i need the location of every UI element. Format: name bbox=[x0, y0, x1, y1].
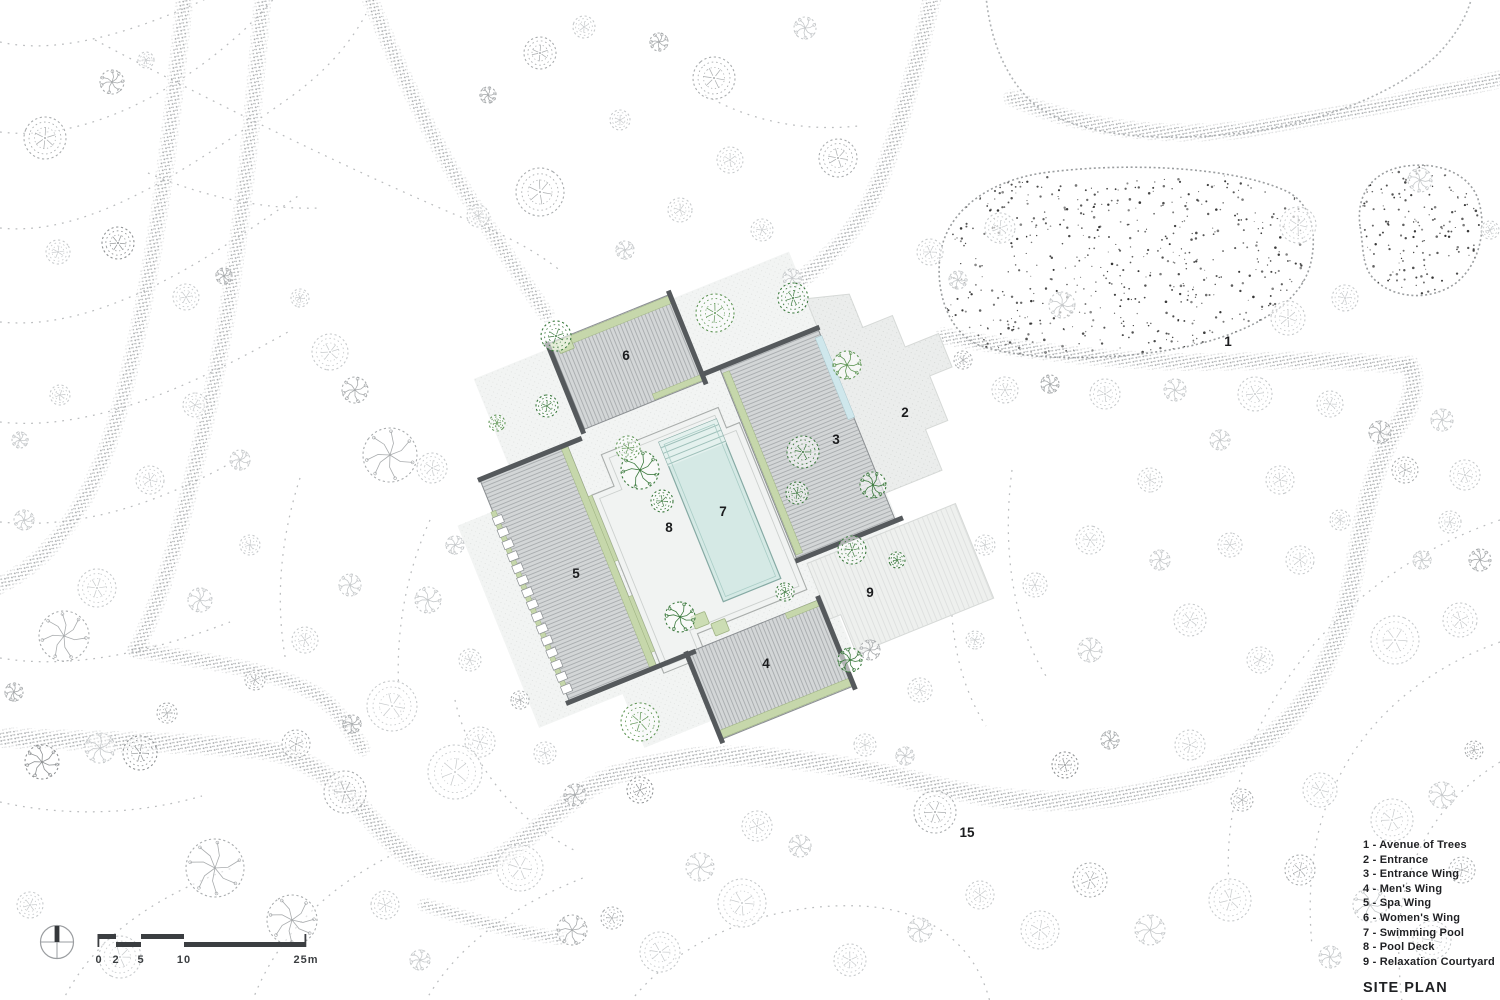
tree-icon bbox=[667, 197, 693, 223]
plan-label-4: 4 bbox=[762, 656, 770, 671]
tree-icon bbox=[1146, 546, 1173, 573]
tree-icon bbox=[1440, 600, 1480, 640]
plan-title: SITE PLAN bbox=[1363, 980, 1500, 996]
tree-icon bbox=[97, 222, 138, 263]
tree-icon bbox=[1073, 633, 1107, 667]
tree-icon bbox=[11, 507, 38, 534]
plan-label-2: 2 bbox=[901, 405, 909, 420]
tree-icon bbox=[245, 670, 265, 690]
ponds bbox=[939, 0, 1482, 359]
tree-icon bbox=[8, 428, 31, 451]
plan-label-1: 1 bbox=[1224, 334, 1232, 349]
tree-icon bbox=[987, 372, 1024, 409]
tree-icon bbox=[507, 159, 573, 225]
tree-icon bbox=[597, 903, 628, 934]
scale-tick-label: 2 bbox=[112, 954, 119, 966]
legend-item-2: 2 - Entrance bbox=[1363, 853, 1500, 868]
contour-line bbox=[630, 906, 990, 1000]
plan-label-9: 9 bbox=[866, 585, 874, 600]
tree-icon bbox=[42, 236, 75, 269]
tree-icon bbox=[1137, 467, 1162, 492]
tree-icon bbox=[1168, 598, 1212, 642]
tree-icon bbox=[1215, 530, 1244, 559]
contour-line bbox=[0, 0, 276, 133]
tree-icon bbox=[1410, 548, 1434, 572]
tree-icon bbox=[352, 417, 427, 492]
plan-label-6: 6 bbox=[622, 348, 630, 363]
tree-icon bbox=[904, 674, 936, 706]
tree-icon bbox=[531, 739, 560, 768]
tree-icon bbox=[1242, 642, 1278, 678]
tree-icon bbox=[187, 587, 213, 613]
legend-item-4: 4 - Men's Wing bbox=[1363, 882, 1500, 897]
tree-icon bbox=[287, 622, 323, 658]
contour-line bbox=[1008, 470, 1046, 676]
tree-icon bbox=[1462, 738, 1486, 762]
tree-icon bbox=[1467, 547, 1494, 574]
green-tree-icon bbox=[665, 602, 695, 632]
tree-icon bbox=[413, 585, 442, 614]
legend-item-6: 6 - Women's Wing bbox=[1363, 911, 1500, 926]
scale-tick-label: 25m bbox=[293, 954, 318, 966]
tree-icon bbox=[17, 110, 72, 165]
tree-icon bbox=[1315, 942, 1345, 972]
tree-icon bbox=[1430, 408, 1454, 432]
plan-label-3: 3 bbox=[832, 432, 840, 447]
tree-icon bbox=[95, 65, 128, 98]
tree-icon bbox=[714, 144, 746, 176]
tree-icon bbox=[830, 940, 870, 980]
tree-icon bbox=[812, 132, 864, 184]
tree-icon bbox=[1073, 523, 1106, 556]
tree-icon bbox=[1226, 784, 1257, 815]
tree-icon bbox=[789, 12, 820, 43]
tree-icon bbox=[408, 949, 431, 972]
tree-icon bbox=[632, 924, 688, 980]
tree-icon bbox=[894, 745, 917, 768]
tree-icon bbox=[414, 450, 450, 486]
tree-icon bbox=[1129, 909, 1171, 951]
tree-icon bbox=[288, 286, 311, 309]
tree-icon bbox=[157, 703, 178, 724]
tree-icon bbox=[1206, 427, 1233, 454]
tree-icon bbox=[608, 108, 633, 133]
gravel-bed-outline bbox=[939, 167, 1313, 357]
tree-icon bbox=[228, 448, 252, 472]
tree-icon bbox=[965, 630, 985, 650]
tree-icon bbox=[1161, 376, 1188, 403]
tree-icon bbox=[240, 535, 260, 555]
tree-icon bbox=[177, 830, 253, 906]
road-path bbox=[0, 0, 185, 588]
tree-icon bbox=[1040, 374, 1059, 394]
road-path bbox=[368, 0, 546, 314]
legend-item-1: 1 - Avenue of Trees bbox=[1363, 838, 1500, 853]
tree-icon bbox=[853, 733, 878, 758]
tree-icon bbox=[684, 48, 743, 107]
tree-icon bbox=[1284, 544, 1317, 577]
tree-icon bbox=[1327, 280, 1364, 317]
tree-icon bbox=[648, 31, 670, 53]
legend-panel: 1 - Avenue of Trees2 - Entrance3 - Entra… bbox=[1363, 838, 1500, 996]
tree-icon bbox=[2, 680, 26, 704]
contour-line bbox=[0, 458, 240, 523]
tree-icon bbox=[1020, 570, 1051, 601]
tree-icon bbox=[1364, 609, 1426, 671]
tree-icon bbox=[904, 914, 937, 947]
tree-icon bbox=[74, 565, 120, 611]
plan-label-7: 7 bbox=[719, 504, 727, 519]
tree-icon bbox=[960, 875, 1000, 915]
tree-icon bbox=[613, 238, 636, 261]
tree-icon bbox=[1067, 857, 1112, 902]
tree-icon bbox=[950, 347, 975, 372]
tree-icon bbox=[737, 806, 777, 846]
tree-icon bbox=[747, 215, 778, 246]
tree-icon bbox=[1424, 777, 1461, 814]
scale-tick-label: 0 bbox=[95, 954, 102, 966]
tree-icon bbox=[138, 52, 155, 69]
tree-icon bbox=[1438, 510, 1462, 534]
tree-icon bbox=[337, 372, 374, 409]
tree-icon bbox=[1328, 508, 1351, 531]
legend-item-7: 7 - Swimming Pool bbox=[1363, 926, 1500, 941]
legend-item-9: 9 - Relaxation Courtyard bbox=[1363, 955, 1500, 970]
plan-label-5: 5 bbox=[572, 566, 580, 581]
tree-icon bbox=[1052, 752, 1078, 778]
contour-line bbox=[0, 796, 202, 812]
north-arrow-icon bbox=[41, 926, 74, 959]
tree-icon bbox=[1233, 372, 1277, 416]
tree-icon bbox=[456, 646, 484, 674]
site-plan-page: 12345678915 0251025m 1 - Avenue of Trees… bbox=[0, 0, 1500, 1000]
tree-icon bbox=[1296, 766, 1343, 813]
tree-icon bbox=[477, 84, 498, 106]
plan-label-8: 8 bbox=[665, 520, 673, 535]
legend-item-3: 3 - Entrance Wing bbox=[1363, 867, 1500, 882]
tree-icon bbox=[1016, 906, 1065, 955]
tree-icon bbox=[30, 602, 98, 670]
tree-icon bbox=[788, 834, 812, 858]
tree-icon bbox=[168, 279, 205, 316]
tree-icon bbox=[1172, 727, 1209, 764]
site-plan-drawing: 12345678915 0251025m bbox=[0, 0, 1500, 1000]
tree-icon bbox=[1098, 728, 1121, 752]
tree-icon bbox=[1389, 454, 1421, 486]
tree-icon bbox=[709, 870, 775, 936]
scale-tick-label: 5 bbox=[137, 954, 144, 966]
tree-icon bbox=[681, 848, 719, 886]
legend-item-8: 8 - Pool Deck bbox=[1363, 940, 1500, 955]
tree-icon bbox=[135, 465, 165, 495]
tree-icon bbox=[1201, 871, 1259, 929]
plan-label-15: 15 bbox=[959, 825, 975, 840]
tree-icon bbox=[1086, 375, 1125, 414]
tree-icon bbox=[1445, 455, 1485, 495]
tree-icon bbox=[517, 30, 562, 75]
tree-icon bbox=[49, 384, 71, 406]
tree-icon bbox=[570, 13, 597, 40]
tree-icon bbox=[364, 678, 420, 734]
tree-icon bbox=[370, 890, 400, 920]
scale-tick-label: 10 bbox=[177, 954, 191, 966]
legend-item-5: 5 - Spa Wing bbox=[1363, 896, 1500, 911]
legend-items: 1 - Avenue of Trees2 - Entrance3 - Entra… bbox=[1363, 838, 1500, 969]
tree-icon bbox=[335, 570, 366, 601]
contour-line bbox=[705, 95, 858, 128]
tree-icon bbox=[309, 331, 351, 373]
tree-icon bbox=[1262, 462, 1298, 498]
tree-icon bbox=[1312, 386, 1349, 423]
tree-icon bbox=[12, 887, 49, 924]
